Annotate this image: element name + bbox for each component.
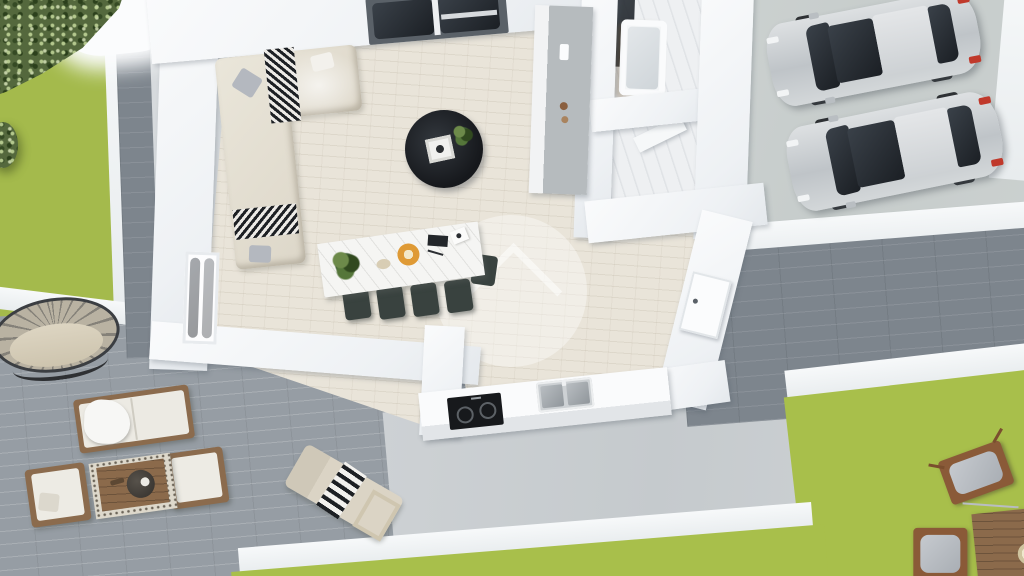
car2-mirror-top (828, 115, 839, 123)
cooktop[interactable] (447, 393, 504, 430)
garden-table-pole (963, 502, 1019, 508)
car1-taillight-right (968, 55, 981, 64)
bathtub[interactable] (619, 19, 668, 97)
burner (456, 406, 475, 425)
faucet (562, 380, 567, 386)
counter-bottle (559, 44, 569, 60)
side-window-pane2 (202, 258, 215, 338)
outdoor-rug[interactable] (89, 453, 178, 520)
side-window-pane (188, 258, 201, 338)
window-pane-left (372, 0, 435, 39)
car2-taillight-left (978, 96, 991, 105)
dining-chair-3[interactable] (410, 282, 440, 317)
sink-basin-right (566, 381, 590, 405)
garden-table[interactable] (971, 507, 1024, 576)
floorplan-render-viewport (0, 0, 1024, 576)
outdoor-coffee-table[interactable] (96, 458, 169, 511)
garden-chair-cushion (947, 449, 1005, 496)
outdoor-armchair-left[interactable] (24, 462, 91, 528)
dining-chair-4[interactable] (444, 278, 474, 313)
counter-jar2 (561, 116, 568, 123)
counter-jar (560, 102, 568, 110)
double-sink[interactable] (536, 377, 595, 413)
garden-dining-set[interactable] (898, 431, 1024, 576)
dining-plant[interactable] (328, 246, 364, 282)
garden-plate (1017, 542, 1024, 566)
car2-headlight-top (786, 139, 799, 147)
burner2 (479, 401, 498, 420)
side-window[interactable] (182, 251, 219, 344)
tray-item (435, 144, 444, 153)
car2-headlight-bottom (797, 194, 810, 202)
car1-headlight-top (766, 36, 779, 44)
table-bottle (110, 477, 125, 486)
car2-taillight-right (991, 158, 1004, 167)
cooktop-knobs (471, 397, 481, 400)
car1-taillight-left (957, 0, 970, 4)
cutting-board (427, 235, 448, 247)
armchair-cushion2 (171, 452, 223, 503)
sink-basin-left (540, 384, 564, 408)
car1-mirror-top (808, 12, 819, 20)
kitchen-counter-column[interactable] (529, 5, 594, 195)
bathtub-basin (626, 26, 660, 89)
armchair-pillow (38, 492, 60, 512)
gray-pillow-2 (249, 245, 272, 263)
door-handle (692, 298, 698, 304)
garden-chair-1[interactable] (937, 440, 1015, 506)
knife (427, 250, 443, 256)
coffee-table-plant[interactable] (451, 124, 475, 146)
car1-headlight-bottom (776, 89, 789, 97)
beige-bowl (376, 258, 391, 270)
coffee-table-tray (425, 135, 455, 164)
dining-chair-2[interactable] (376, 285, 406, 320)
round-coffee-table[interactable] (405, 110, 483, 188)
front-door[interactable] (679, 271, 732, 339)
garden-chair-cushion2 (920, 535, 960, 573)
garden-chair-2[interactable] (913, 528, 967, 576)
orange-plate (396, 242, 421, 267)
chair-leg (928, 463, 944, 469)
